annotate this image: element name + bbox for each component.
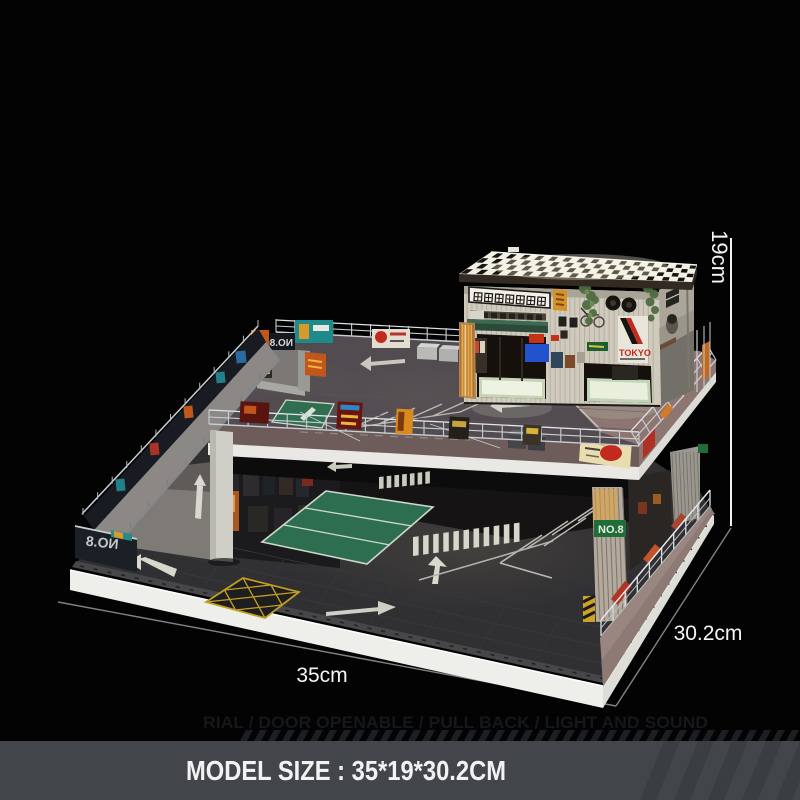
svg-text:35cm: 35cm [296,664,347,687]
svg-text:TOKYO: TOKYO [619,348,651,358]
svg-text:19cm: 19cm [707,230,732,284]
svg-text:NO.8: NO.8 [598,524,624,536]
svg-text:NO.8: NO.8 [269,338,293,349]
svg-text:MODEL SIZE : 35*19*30.2CM: MODEL SIZE : 35*19*30.2CM [186,755,506,786]
svg-text:RIAL / DOOR OPENABLE / PULL BA: RIAL / DOOR OPENABLE / PULL BACK / LIGHT… [203,713,708,732]
svg-text:30.2cm: 30.2cm [674,622,743,645]
